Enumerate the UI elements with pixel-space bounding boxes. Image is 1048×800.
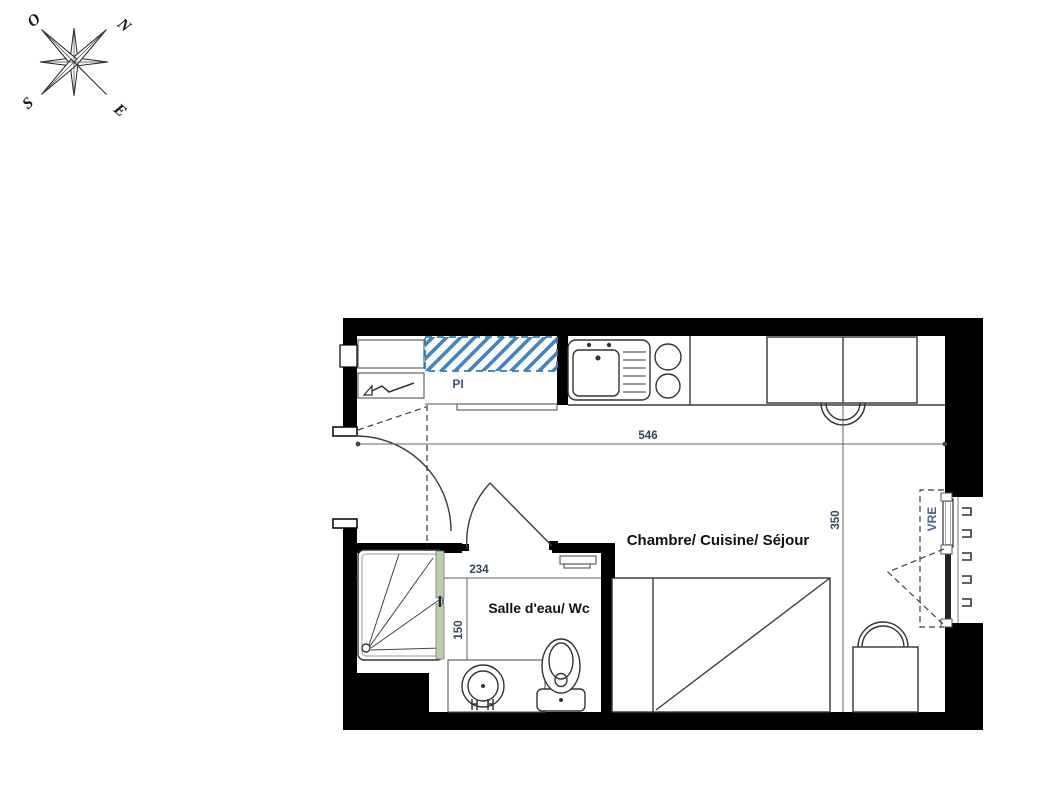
window-sash-fixed	[945, 553, 951, 621]
dimension-bath-depth: 150	[453, 578, 467, 660]
compass-east-label: E	[110, 100, 130, 121]
dining-table	[767, 337, 917, 425]
toilet	[537, 639, 585, 711]
svg-text:150: 150	[453, 620, 465, 639]
svg-text:546: 546	[638, 430, 657, 442]
bathroom-door-swing-arc	[467, 483, 490, 549]
entry-storage	[358, 340, 424, 398]
door-latch-block	[462, 544, 469, 551]
bathroom-label: Salle d'eau/ Wc	[488, 600, 590, 616]
pi-closet-hatch	[425, 337, 557, 371]
dimension-main-width: 546	[356, 430, 948, 446]
floorplan-canvas: O N S E	[0, 0, 1048, 800]
compass-west-label: O	[24, 10, 44, 31]
bathroom-door	[467, 483, 552, 549]
svg-text:234: 234	[469, 564, 489, 576]
svg-text:350: 350	[830, 510, 842, 529]
cooktop	[655, 344, 681, 398]
compass-rose: O N S E	[19, 10, 135, 120]
desk	[853, 622, 918, 712]
compass-south-label: S	[19, 94, 37, 113]
entry-door	[356, 405, 451, 546]
washbasin	[448, 660, 545, 712]
kitchen-sink	[568, 340, 650, 400]
bed	[612, 578, 830, 712]
shower-glass	[436, 551, 444, 598]
window-shutter-label: VRE	[925, 507, 939, 532]
wall-reservation	[340, 345, 357, 367]
pi-closet-label: PI	[452, 377, 463, 391]
door-hinge-block	[549, 541, 558, 550]
dimension-main-depth: 350	[830, 405, 843, 712]
entry-door-swing-arc	[356, 436, 451, 531]
shower-glass	[436, 604, 444, 659]
window-swing-dashed	[888, 549, 944, 625]
main-room-label: Chambre/ Cuisine/ Séjour	[627, 532, 810, 549]
shower	[358, 550, 444, 660]
window-sash-open	[943, 499, 953, 547]
balcony-railing	[962, 508, 971, 606]
window-vre: VRE	[888, 490, 958, 627]
bathroom-door-leaf	[490, 483, 552, 546]
compass-north-label: N	[113, 15, 135, 37]
electrical-panel-icon	[364, 383, 414, 395]
towel-shelf	[560, 556, 596, 568]
pi-closet: PI	[425, 337, 557, 410]
floorplan-drawing: O N S E	[0, 0, 1048, 800]
